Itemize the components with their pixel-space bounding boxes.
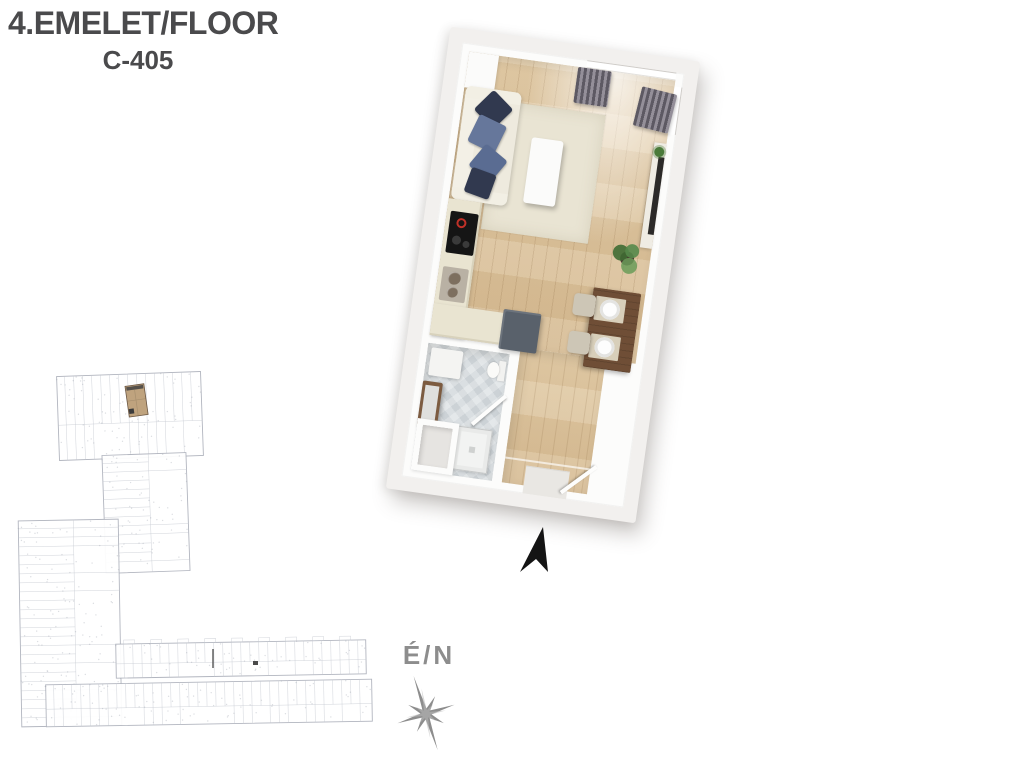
curtain-left [573, 67, 612, 107]
floor-title: 4.EMELET/FLOOR [8, 6, 274, 41]
toilet [485, 355, 507, 385]
entrance-threshold [522, 466, 569, 500]
page-canvas: 4.EMELET/FLOOR C-405 [0, 0, 1013, 760]
dining-chair [567, 330, 592, 355]
site-plan-core-mark [253, 661, 258, 665]
dining-chair [572, 293, 597, 318]
plan-header: 4.EMELET/FLOOR C-405 [8, 6, 274, 76]
washing-machine [428, 347, 464, 379]
site-plan-wing [115, 636, 366, 678]
kitchen-sink [439, 266, 469, 303]
storage-niche [411, 418, 460, 475]
north-arrow-icon [500, 516, 560, 586]
site-plan-wing [45, 679, 372, 727]
unit-code: C-405 [8, 45, 268, 76]
site-plan [8, 362, 380, 754]
highlighted-unit [125, 384, 148, 417]
compass-label: É/N [383, 640, 475, 671]
compass-rose-icon [386, 672, 470, 756]
cooktop [445, 211, 479, 256]
potted-plant [610, 242, 644, 276]
refrigerator [498, 309, 541, 354]
apartment-render [386, 27, 700, 524]
